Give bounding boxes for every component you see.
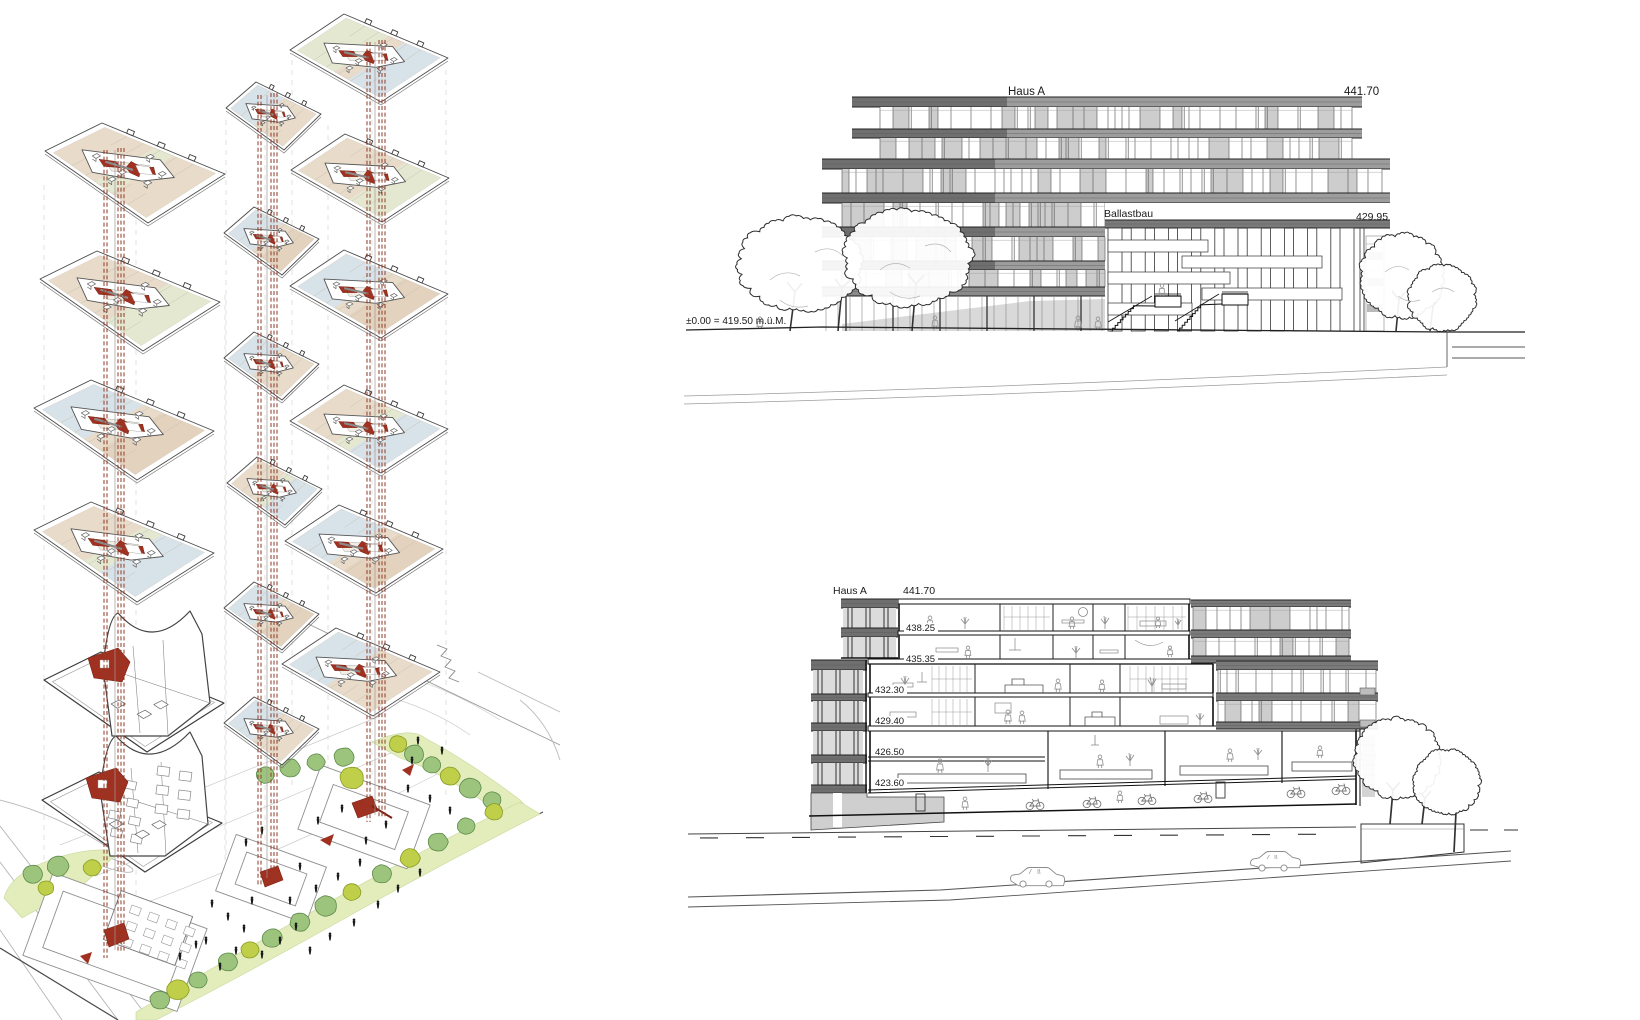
svg-text:441.70: 441.70 [1344, 86, 1379, 98]
svg-text:Ballastbau: Ballastbau [1104, 208, 1153, 220]
svg-text:435.35: 435.35 [906, 654, 935, 665]
svg-text:423.60: 423.60 [875, 778, 904, 789]
svg-text:Haus A: Haus A [833, 585, 867, 597]
svg-text:441.70: 441.70 [903, 585, 935, 597]
svg-text:Haus A: Haus A [1008, 86, 1045, 98]
svg-text:438.25: 438.25 [906, 623, 935, 634]
svg-text:±0.00 = 419.50 m.ü.M.: ±0.00 = 419.50 m.ü.M. [686, 316, 786, 327]
svg-text:426.50: 426.50 [875, 747, 904, 758]
svg-text:432.30: 432.30 [875, 685, 904, 696]
svg-text:429.40: 429.40 [875, 716, 904, 727]
